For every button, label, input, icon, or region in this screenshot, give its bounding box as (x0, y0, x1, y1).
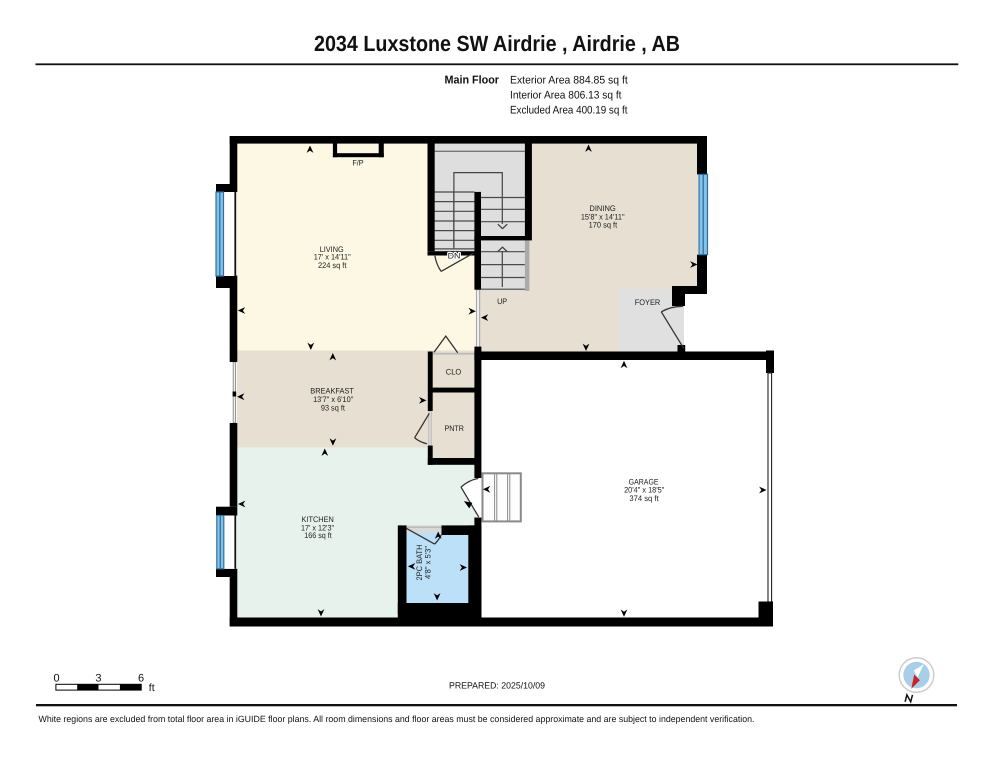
svg-text:0: 0 (53, 673, 59, 685)
svg-text:PNTR: PNTR (444, 424, 464, 433)
svg-text:93 sq ft: 93 sq ft (321, 403, 346, 412)
svg-text:Main Floor: Main Floor (445, 75, 500, 87)
svg-text:ft: ft (149, 682, 155, 694)
svg-text:6: 6 (138, 673, 144, 685)
svg-text:224 sq ft: 224 sq ft (318, 261, 347, 270)
svg-text:374 sq ft: 374 sq ft (629, 494, 659, 503)
svg-text:166 sq ft: 166 sq ft (304, 531, 332, 540)
svg-text:DN: DN (448, 251, 461, 260)
svg-text:F/P: F/P (352, 158, 363, 167)
svg-text:Excluded Area 400.19 sq ft: Excluded Area 400.19 sq ft (510, 105, 628, 117)
svg-text:White regions are excluded fro: White regions are excluded from total fl… (39, 714, 755, 724)
svg-text:4'8" x 5'3": 4'8" x 5'3" (424, 546, 433, 579)
svg-text:2034 Luxstone SW Airdrie , Air: 2034 Luxstone SW Airdrie , Airdrie , AB (314, 31, 680, 56)
svg-text:FOYER: FOYER (635, 298, 661, 307)
svg-text:3: 3 (95, 673, 101, 685)
svg-text:PREPARED: 2025/10/09: PREPARED: 2025/10/09 (449, 681, 545, 691)
svg-text:170 sq ft: 170 sq ft (589, 220, 618, 229)
svg-text:Exterior Area 884.85 sq ft: Exterior Area 884.85 sq ft (510, 75, 628, 87)
svg-text:Interior Area 806.13 sq ft: Interior Area 806.13 sq ft (510, 89, 622, 101)
svg-text:UP: UP (497, 297, 507, 306)
svg-text:CLO: CLO (446, 368, 462, 377)
